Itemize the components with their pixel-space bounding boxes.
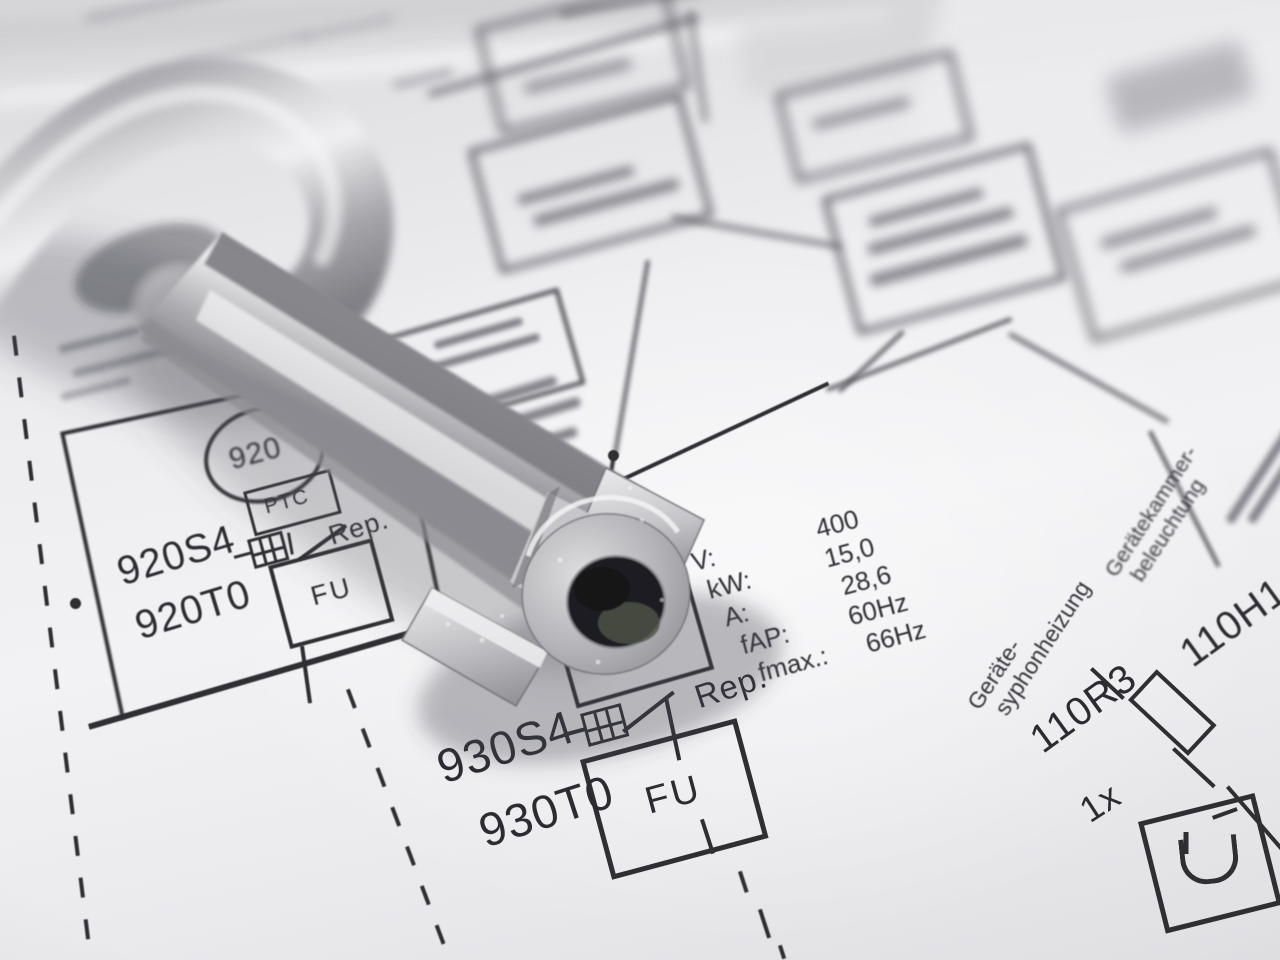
- key-photo-layer: [0, 0, 1280, 960]
- hole-dark-core: [574, 567, 630, 611]
- photo-key-on-schematic: 920 PTC 920S4 Rep. FU 920T0 930S4 Rep. F…: [0, 0, 1280, 960]
